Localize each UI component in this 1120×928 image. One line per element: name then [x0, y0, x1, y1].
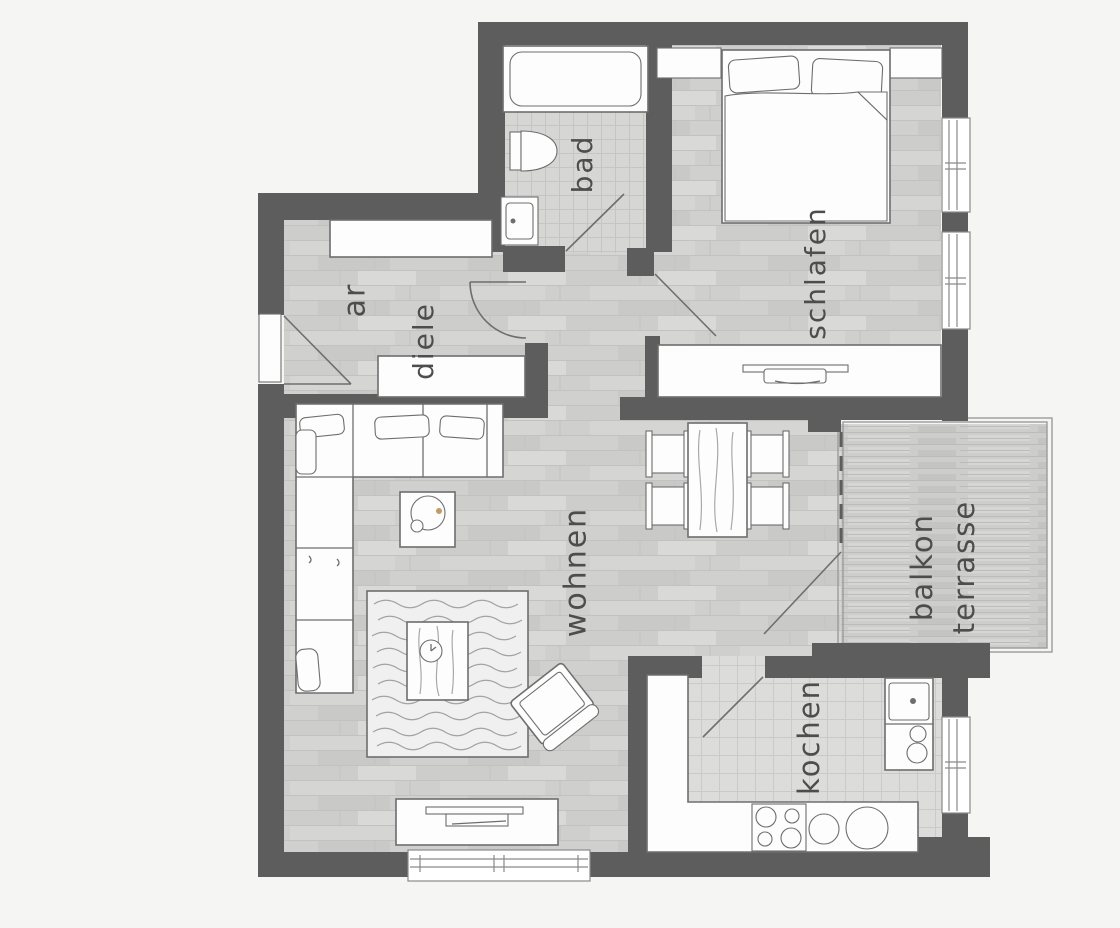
duvet [725, 92, 887, 221]
label-kochen: kochen [792, 679, 826, 795]
label-terrasse: terrasse [947, 500, 981, 634]
dining-chair [646, 483, 690, 529]
dining-chair [646, 431, 690, 477]
headboard-shelf-right [890, 48, 942, 78]
coffee-table [407, 622, 468, 700]
dining-table [688, 423, 747, 537]
bathtub-basin [510, 52, 641, 106]
tv-lowboard [396, 799, 558, 845]
label-schlafen: schlafen [799, 206, 832, 340]
label-bad: bad [566, 135, 599, 194]
faucet-dot [511, 219, 516, 224]
sofa-pillow [439, 415, 484, 439]
wardrobe [330, 220, 492, 257]
side-table [400, 492, 455, 547]
floor-plan-page: bad schlafen ar diele wohnen kochen balk… [0, 0, 1120, 928]
balcony-deck [841, 424, 1047, 648]
pillow [728, 56, 800, 94]
label-balkon: balkon [905, 513, 939, 621]
sofa-pillow [295, 648, 321, 692]
window-bedroom-2 [942, 232, 970, 329]
sofa-pillow [296, 430, 316, 474]
window-kitchen [942, 717, 970, 813]
headboard-shelf-left [657, 48, 721, 78]
window-living [408, 850, 590, 881]
bedroom-sideboard [658, 345, 941, 397]
label-ar: ar [338, 283, 373, 318]
kitchen-appliance-unit [885, 678, 933, 770]
window-bedroom-1 [942, 118, 970, 212]
plant-accent [436, 508, 442, 514]
wash-basin [501, 197, 538, 245]
label-diele: diele [407, 302, 440, 380]
hall-sideboard [378, 356, 525, 397]
label-wohnen: wohnen [559, 507, 594, 637]
room-balkon [838, 418, 1052, 652]
floor-plan: bad schlafen ar diele wohnen kochen balk… [0, 0, 1120, 928]
sofa-pillow [374, 415, 429, 440]
dining-chair [745, 431, 789, 477]
dining-chair [745, 483, 789, 529]
stove [752, 804, 806, 851]
bed [722, 50, 890, 223]
